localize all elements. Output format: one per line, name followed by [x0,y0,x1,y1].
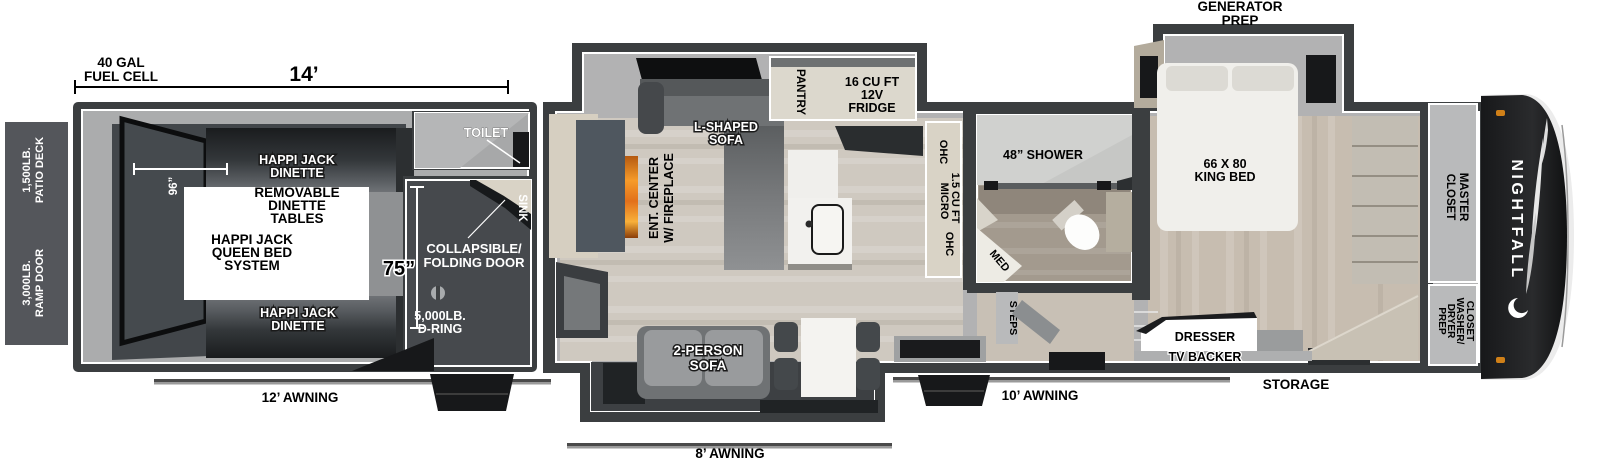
svg-text:2-PERSON: 2-PERSON [673,343,742,358]
svg-text:12V: 12V [861,88,884,102]
svg-text:NIGHTFALL: NIGHTFALL [1508,159,1525,280]
svg-text:SOFA: SOFA [690,358,727,373]
svg-text:DINETTE: DINETTE [270,166,323,180]
svg-text:FRIDGE: FRIDGE [848,101,895,115]
svg-text:COLLAPSIBLE/: COLLAPSIBLE/ [426,241,522,256]
svg-text:48” SHOWER: 48” SHOWER [1003,148,1083,162]
svg-text:66 X 80: 66 X 80 [1203,157,1246,171]
svg-text:STORAGE: STORAGE [1263,377,1330,392]
svg-text:8’ AWNING: 8’ AWNING [695,446,764,460]
svg-text:SOFA: SOFA [709,133,743,147]
svg-text:96”: 96” [168,177,180,196]
svg-text:TOILET: TOILET [464,126,509,140]
svg-text:14’: 14’ [289,63,318,86]
svg-text:DRESSER: DRESSER [1175,330,1235,344]
svg-text:GENERATOR: GENERATOR [1197,0,1282,14]
svg-text:16 CU FT: 16 CU FT [845,75,900,89]
svg-text:SYSTEM: SYSTEM [224,258,280,273]
svg-text:RAMP DOOR: RAMP DOOR [34,249,46,317]
svg-text:HAPPI JACK: HAPPI JACK [260,306,336,320]
svg-text:10’ AWNING: 10’ AWNING [1002,388,1079,403]
svg-text:1,500LB.: 1,500LB. [21,147,33,192]
svg-text:TABLES: TABLES [271,211,324,226]
svg-text:PREP: PREP [1222,13,1259,28]
svg-text:D-RING: D-RING [418,322,462,336]
svg-text:3,000LB.: 3,000LB. [21,260,33,305]
svg-text:PREP: PREP [1436,307,1447,335]
svg-text:W/ FIREPLACE: W/ FIREPLACE [662,153,676,243]
svg-text:MICRO: MICRO [938,183,950,220]
svg-text:TV BACKER: TV BACKER [1169,350,1242,364]
svg-text:FUEL CELL: FUEL CELL [84,69,158,84]
svg-text:ENT. CENTER: ENT. CENTER [647,157,661,239]
svg-text:40 GAL: 40 GAL [97,55,144,70]
svg-text:SINK: SINK [516,194,528,222]
svg-text:FOLDING DOOR: FOLDING DOOR [423,255,525,270]
svg-text:PATIO DECK: PATIO DECK [34,137,46,203]
svg-text:5,000LB.: 5,000LB. [414,309,465,323]
svg-text:PANTRY: PANTRY [794,69,806,115]
svg-text:L-SHAPED: L-SHAPED [694,120,758,134]
svg-text:OHC: OHC [943,232,955,257]
svg-text:75”: 75” [383,258,415,280]
svg-text:MASTER: MASTER [1457,173,1469,222]
svg-text:12’ AWNING: 12’ AWNING [262,390,339,405]
svg-text:HAPPI JACK: HAPPI JACK [259,153,335,167]
svg-text:CLOSET: CLOSET [1444,174,1456,221]
svg-text:OHC: OHC [937,140,949,165]
svg-text:KING BED: KING BED [1194,170,1255,184]
svg-text:DINETTE: DINETTE [271,319,324,333]
